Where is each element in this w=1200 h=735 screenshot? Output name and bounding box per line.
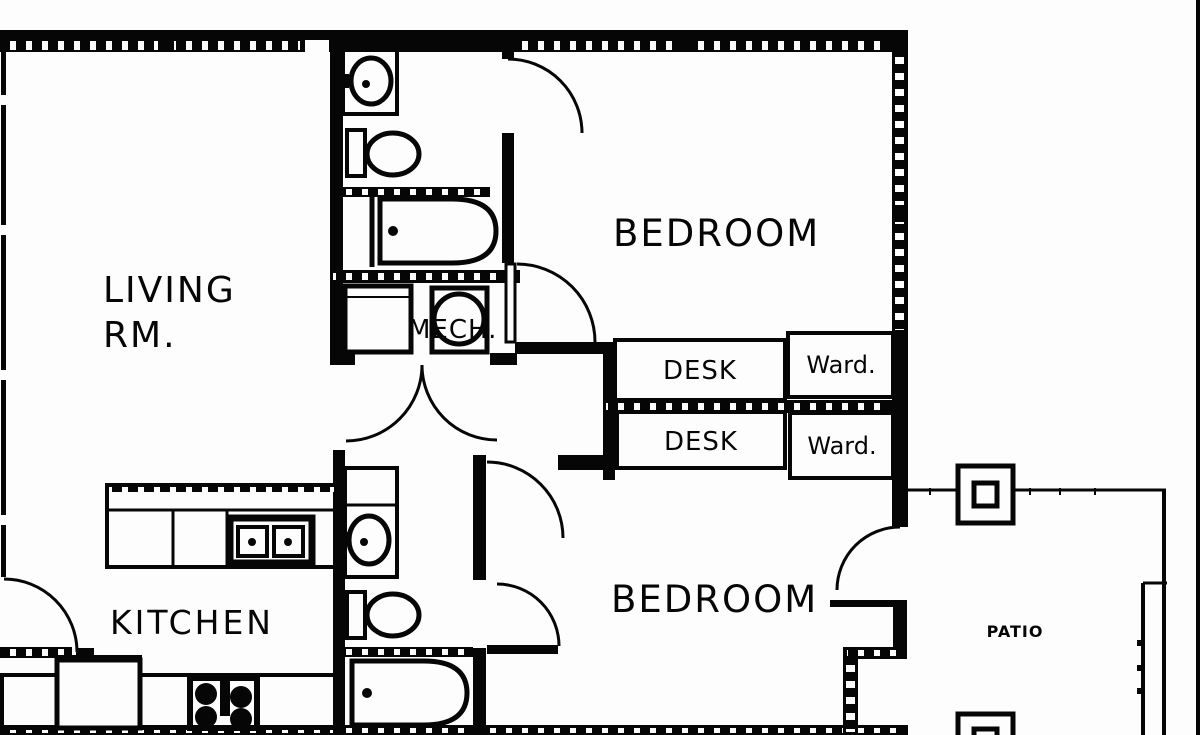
patio-area [908,466,1167,735]
wall-bath2-east-lower [473,648,486,735]
wardrobe-top-label: Ward. [806,351,875,379]
west-jamb-hatch [4,649,68,656]
wall-bath1-mech-hatch [333,273,517,280]
sink-drain-left [248,538,256,546]
mech-label: MECH. [408,315,497,345]
bath2-tub-drain [362,688,372,698]
kitchen-label: KITCHEN [110,603,274,642]
kitchen-counter-lower [2,675,337,728]
wall-bath2-tub-alcove-hatch [338,649,470,655]
east-window-2 [895,222,904,330]
bath1-sink-drain [362,80,370,88]
mech-door-swing-left [346,365,422,441]
image-edge-line [1196,0,1200,735]
se-jog-hatch-2 [846,662,855,732]
wall-bath1-bed1 [502,133,514,263]
patio-rail-tick-3 [1137,688,1142,694]
bed1-north-door-swing [508,59,582,133]
interior-walls [330,45,893,735]
bath1-toilet-tank [347,130,365,176]
desk-top-label: DESK [663,356,737,386]
patio-column-bottom-core [974,729,997,735]
stove-burner-3 [230,686,252,708]
wall-bed2-north-stub [558,455,615,470]
mech-south-jamb-right [490,353,517,365]
bath2-toilet-icon [367,594,419,636]
wall-bath1-divider-hatch [336,189,487,195]
wall-bath1-bed1-top-jamb [502,45,514,59]
bathroom-bottom [341,468,467,725]
wall-between-bedrooms-hatch [606,403,890,410]
stove-burner-4 [230,708,252,730]
bed2-door-swing [497,584,559,646]
sink-drain-right [284,538,292,546]
bathroom-top [340,48,496,267]
west-wall [1,30,6,577]
west-window-break-4 [0,515,7,525]
living-room-label-line1: LIVING [103,270,236,311]
se-jog-wall-2 [893,600,907,653]
mech-equipment-box [345,286,411,352]
north-wall-break [305,40,329,52]
east-window-1 [895,55,904,205]
north-window-4 [694,41,888,50]
bedroom-top-label: BEDROOM [613,212,820,255]
stove-burner-1 [195,683,217,705]
bath2-sink-drain [360,538,368,546]
bath1-sink-icon [351,58,391,104]
patio-column-bottom [958,714,1013,735]
floor-plan-sheet: LIVING RM. KITCHEN MECH. BEDROOM BEDROOM… [0,0,1200,735]
stove-burner-2 [195,706,217,728]
wall-bed1-south-stub [515,342,615,354]
fridge-icon [57,660,140,728]
fridge-handle [76,648,94,656]
living-room-label-line2: RM. [103,315,177,356]
desk-bottom-label: DESK [664,427,738,457]
se-jog-wall-1 [830,600,897,607]
west-window-break-3 [0,370,7,380]
north-window-2 [174,41,300,50]
bed1-door-leaf [506,264,515,342]
west-window-break-1 [0,95,7,105]
bath1-toilet-icon [367,133,419,175]
north-window-1 [8,41,158,50]
patio-column-top [958,466,1013,523]
stove-center-bar [220,678,230,716]
bath2-toilet-tank [347,592,365,638]
kitchen-counter-hatch [110,487,334,492]
floor-plan-drawing: LIVING RM. KITCHEN MECH. BEDROOM BEDROOM… [0,0,1200,735]
patio-door-swing [837,527,900,590]
mech-south-jamb-left [330,353,355,365]
patio-rail-tick-1 [1137,640,1142,646]
patio-rail-tick-2 [1137,665,1142,671]
west-window-break-2 [0,225,7,235]
bath2-door-swing [487,462,563,538]
se-jog-hatch [847,650,903,656]
wall-bed2-door-stub [487,645,558,654]
bed1-hall-door-swing [517,264,595,342]
bath2-faucet-icon [341,532,350,546]
north-window-3 [520,41,678,50]
mech-door-swing-right [422,365,497,440]
kitchen-entry-door-swing [4,579,77,652]
wardrobe-bottom-label: Ward. [807,432,876,460]
patio-label: PATIO [987,622,1044,641]
bath1-tub-drain [388,226,398,236]
bath2-sink-icon [349,516,389,564]
bath1-faucet-icon [340,74,349,88]
wall-bath2-east-upper [473,455,486,580]
bedroom-bottom-label: BEDROOM [611,578,818,621]
